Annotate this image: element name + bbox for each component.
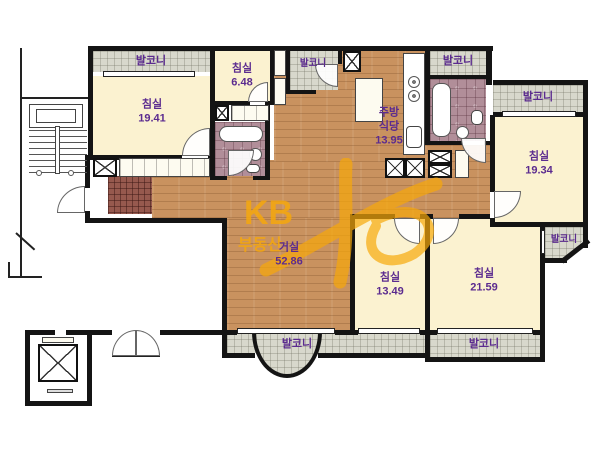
entry-double-door-left-icon — [112, 330, 136, 356]
room-area: 6.48 — [231, 76, 252, 90]
linen-closet-icon — [428, 150, 452, 164]
room-area: 13.49 — [376, 285, 404, 299]
room-name: 침실 — [376, 271, 404, 285]
window-living — [237, 328, 335, 334]
balcony-label: 발코니 — [443, 55, 473, 69]
room-label-kitchen: 주방 식당 13.95 — [375, 106, 403, 147]
linen-closet-icon — [428, 164, 452, 178]
room-label-bedroom-19-34: 침실 19.34 — [525, 150, 553, 178]
entry-double-door-right-icon — [136, 330, 160, 356]
balcony-label: 발코니 — [136, 55, 166, 69]
floor-plan: KB 부동산 발코니 침실 19.41 침실 6.48 발코니 발코니 주방 식… — [0, 0, 600, 449]
closet-shelf-icon — [119, 158, 210, 177]
stove-burner-icon — [408, 90, 420, 102]
window-bedroom-19-34 — [502, 111, 576, 117]
room-area: 13.95 — [375, 134, 403, 148]
room-label-bedroom-13-49: 침실 13.49 — [376, 271, 404, 299]
closet-x-icon — [343, 51, 361, 72]
room-name: 침실 — [470, 267, 498, 281]
elevator-icon — [38, 344, 78, 382]
room-name: 주방 — [375, 106, 403, 120]
room-area: 52.86 — [275, 255, 303, 269]
room-name: 침실 — [525, 150, 553, 164]
closet-x-icon — [405, 158, 425, 178]
room-name: 식당 — [375, 120, 403, 134]
closet-x-icon — [215, 105, 229, 121]
balcony-label: 발코니 — [523, 91, 553, 105]
room-name: 침실 — [231, 62, 252, 76]
living-floor — [227, 218, 355, 332]
room-label-bedroom-19-41: 침실 19.41 — [138, 98, 166, 126]
elevator-door-icon — [42, 337, 74, 343]
balcony-label: 발코니 — [300, 58, 326, 70]
room-label-bedroom-21-59: 침실 21.59 — [470, 267, 498, 295]
elevator-sill-icon — [47, 389, 73, 393]
window-balcony-small — [541, 230, 545, 254]
staircase-right-icon — [60, 130, 87, 174]
bathtub-icon — [219, 126, 263, 142]
stove-burner-icon — [408, 76, 420, 88]
closet-icon — [274, 78, 286, 105]
stair-post-icon — [36, 170, 42, 176]
closet-x-icon — [385, 158, 405, 178]
closet-icon — [274, 50, 286, 76]
room-name: 거실 — [275, 241, 303, 255]
balcony-label: 발코니 — [282, 338, 312, 352]
entry-door-icon — [57, 186, 85, 213]
stair-landing-inner-icon — [36, 109, 76, 123]
window-bedroom-13-49 — [358, 328, 420, 334]
toilet-icon — [471, 110, 483, 125]
closet-shelf-icon — [231, 105, 269, 121]
room-area: 21.59 — [470, 281, 498, 295]
window-bedroom-21-59 — [437, 328, 533, 334]
window-bedroom-19-41 — [103, 71, 195, 77]
closet-x-icon — [93, 158, 117, 177]
room-area: 19.34 — [525, 164, 553, 178]
staircase-left-icon — [29, 130, 56, 174]
balcony-label: 발코니 — [469, 338, 499, 352]
kitchen-sink-icon — [406, 126, 422, 148]
bathtub-icon — [432, 83, 451, 137]
room-label-living: 거실 52.86 — [275, 241, 303, 269]
room-area: 19.41 — [138, 112, 166, 126]
stair-rail-icon — [55, 126, 60, 174]
room-name: 침실 — [138, 98, 166, 112]
stair-post-icon — [68, 170, 74, 176]
balcony-label: 발코니 — [551, 234, 577, 246]
entry-foyer — [108, 176, 152, 214]
room-label-bedroom-6-48: 침실 6.48 — [231, 62, 252, 90]
